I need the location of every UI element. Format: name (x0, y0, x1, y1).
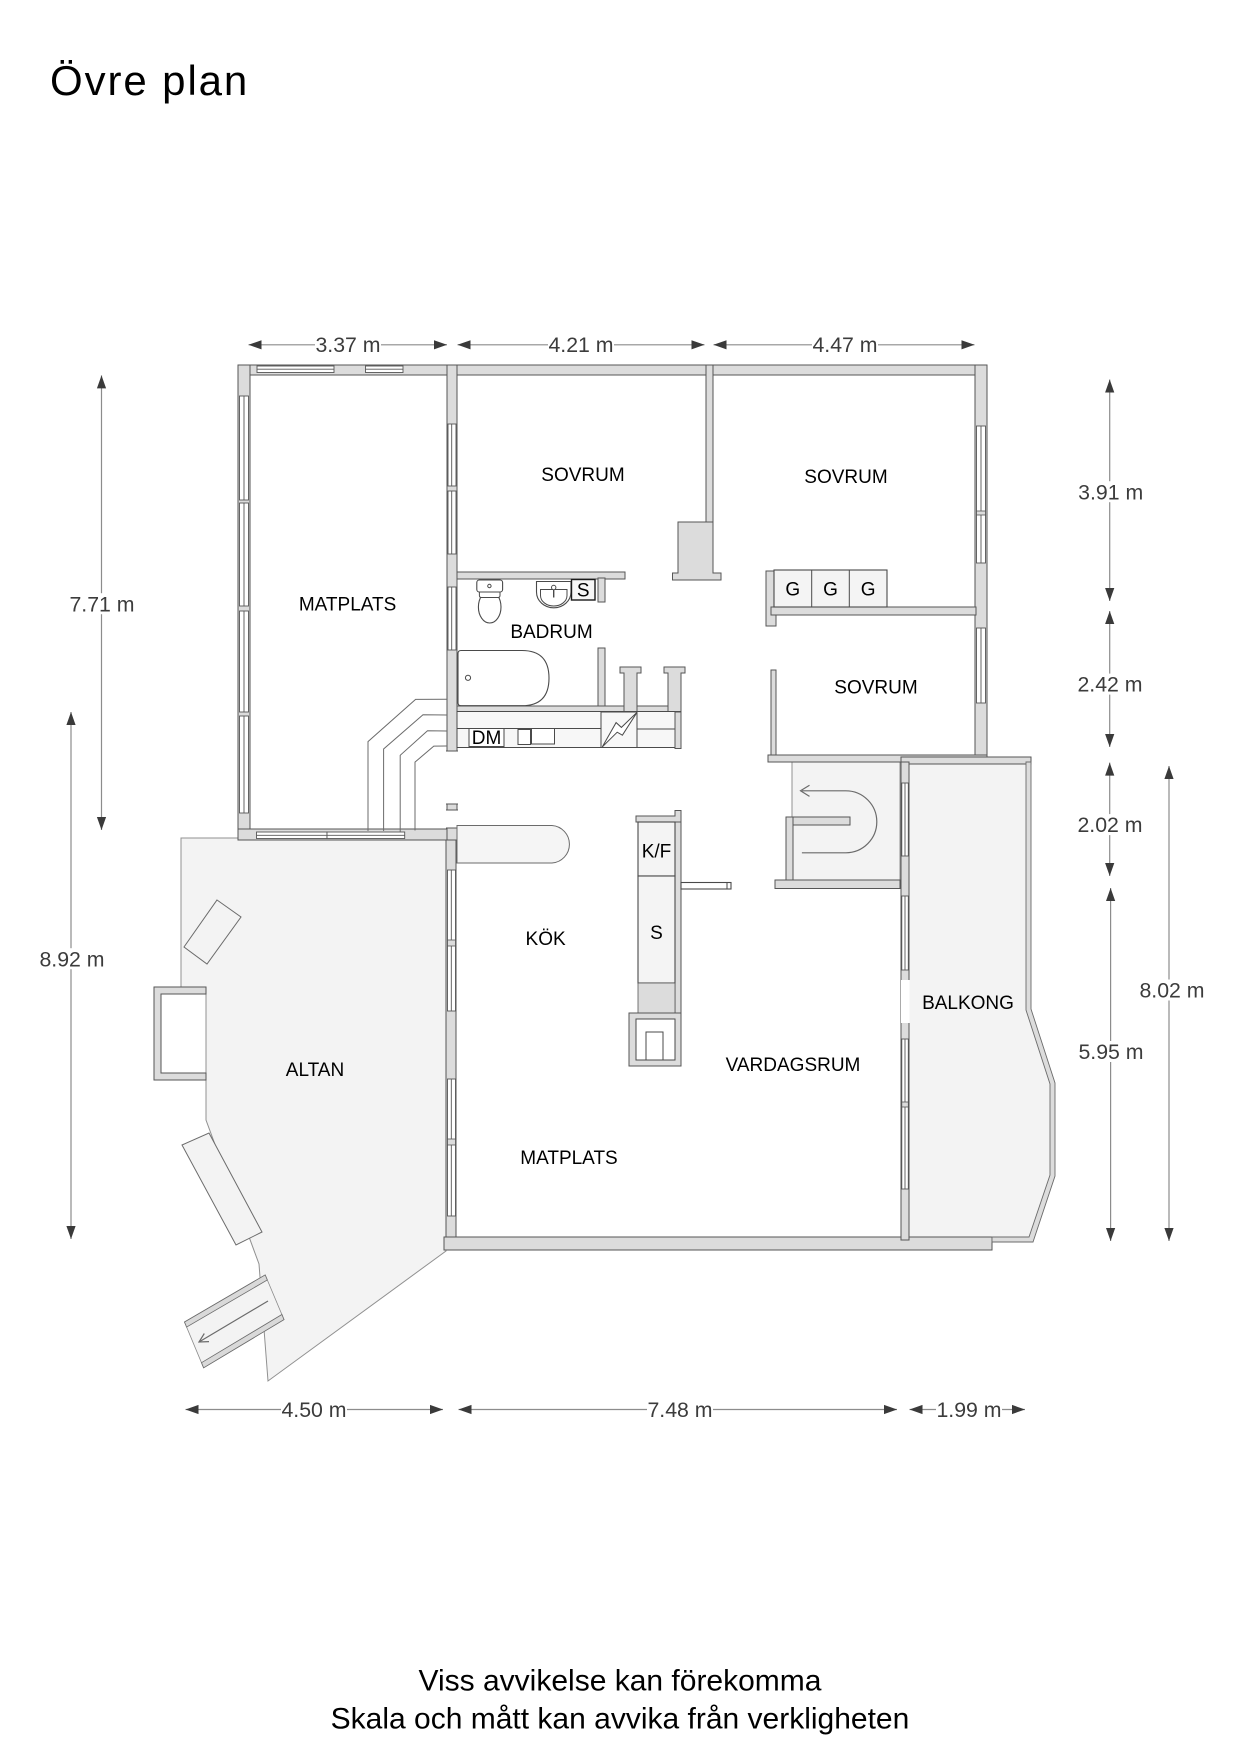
svg-text:8.02 m: 8.02 m (1139, 979, 1204, 1003)
svg-text:7.48 m: 7.48 m (647, 1398, 712, 1422)
svg-text:1.99 m: 1.99 m (936, 1398, 1001, 1422)
svg-text:5.95 m: 5.95 m (1078, 1040, 1143, 1064)
svg-text:4.47 m: 4.47 m (812, 333, 877, 357)
svg-text:G: G (785, 579, 800, 600)
svg-text:S: S (650, 923, 663, 944)
svg-text:SOVRUM: SOVRUM (541, 465, 624, 486)
svg-text:SOVRUM: SOVRUM (804, 467, 887, 488)
svg-text:G: G (861, 579, 876, 600)
svg-text:4.21 m: 4.21 m (548, 333, 613, 357)
svg-text:Skala och mått kan avvika från: Skala och mått kan avvika från verklighe… (331, 1702, 910, 1735)
svg-text:Viss avvikelse kan förekomma: Viss avvikelse kan förekomma (419, 1665, 822, 1698)
svg-text:ALTAN: ALTAN (286, 1060, 344, 1081)
svg-text:MATPLATS: MATPLATS (299, 595, 396, 616)
svg-text:DM: DM (472, 728, 502, 749)
svg-text:Övre plan: Övre plan (50, 57, 249, 104)
svg-text:BALKONG: BALKONG (922, 993, 1014, 1014)
svg-text:K/F: K/F (642, 842, 672, 863)
svg-text:2.42 m: 2.42 m (1077, 673, 1142, 697)
svg-text:G: G (823, 579, 838, 600)
svg-text:MATPLATS: MATPLATS (520, 1148, 617, 1169)
svg-text:S: S (577, 581, 590, 602)
svg-text:4.50 m: 4.50 m (281, 1398, 346, 1422)
svg-text:7.71 m: 7.71 m (69, 592, 134, 616)
svg-text:2.02 m: 2.02 m (1077, 813, 1142, 837)
svg-text:KÖK: KÖK (526, 929, 566, 950)
svg-text:SOVRUM: SOVRUM (834, 678, 917, 699)
svg-text:3.37 m: 3.37 m (315, 333, 380, 357)
svg-text:3.91 m: 3.91 m (1078, 480, 1143, 504)
svg-text:8.92 m: 8.92 m (39, 947, 104, 971)
svg-text:VARDAGSRUM: VARDAGSRUM (726, 1055, 861, 1076)
svg-text:BADRUM: BADRUM (510, 622, 592, 643)
